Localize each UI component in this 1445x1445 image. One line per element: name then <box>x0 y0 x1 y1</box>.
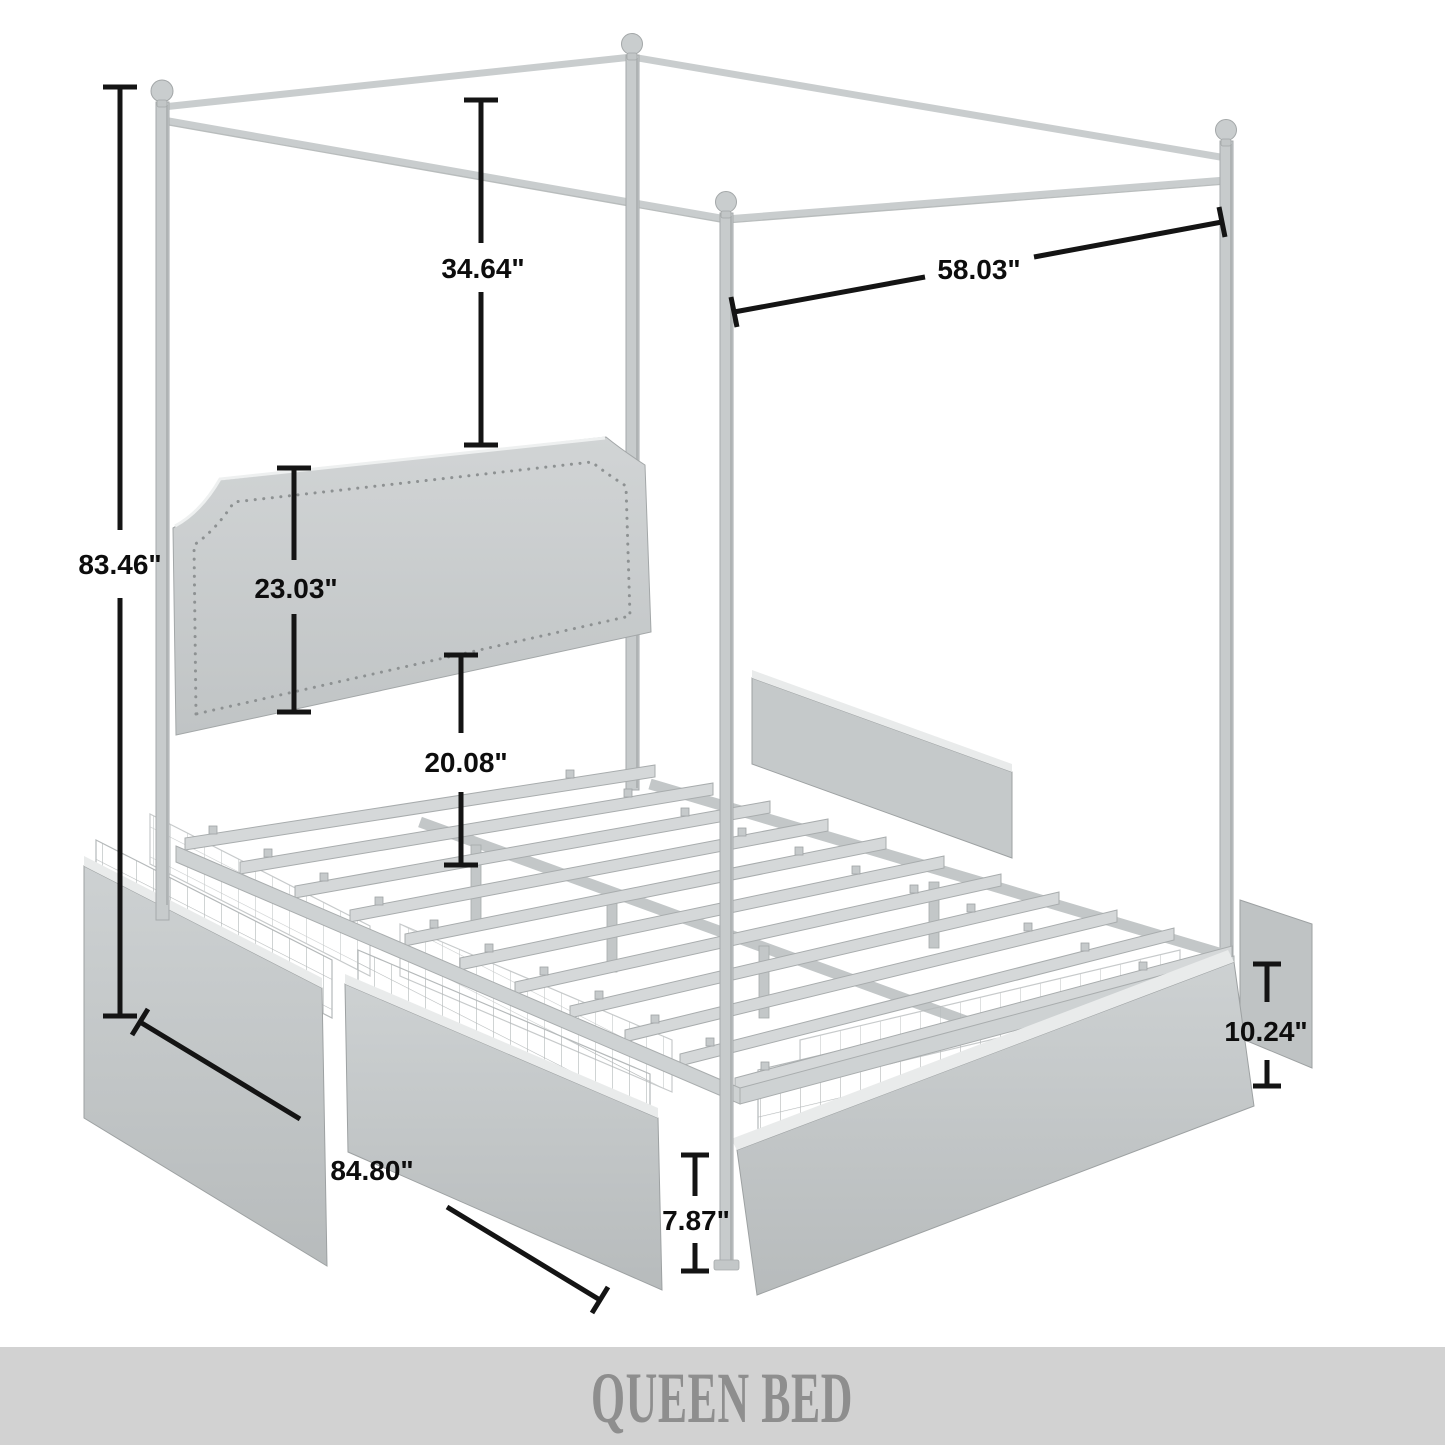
bedpost-head-far <box>622 34 643 791</box>
bed-dimension-diagram: 83.46" 34.64" 58.03" 23.03" 20.08" 84.80… <box>0 0 1445 1445</box>
dim-drawer-height-label: 10.24" <box>1224 1016 1307 1047</box>
banner-title: QUEEN BED <box>591 1358 853 1438</box>
dim-canopy-drop: 34.64" <box>441 100 524 445</box>
dim-platform-height-label: 20.08" <box>424 747 507 778</box>
canopy-frame <box>163 57 1226 223</box>
bedpost-foot-far <box>1216 120 1237 1007</box>
headboard <box>173 437 651 735</box>
dim-canopy-drop-label: 34.64" <box>441 253 524 284</box>
finial-ball <box>1216 120 1237 141</box>
bed-illustration: 83.46" 34.64" 58.03" 23.03" 20.08" 84.80… <box>0 0 1445 1445</box>
finial-ball <box>151 80 173 102</box>
finial-ball <box>622 34 643 55</box>
bedpost-head-near <box>151 80 173 920</box>
dim-headboard-height-label: 23.03" <box>254 573 337 604</box>
post-foot <box>714 1260 739 1270</box>
bedpost-foot-near <box>714 192 739 1271</box>
dim-canopy-width-label: 58.03" <box>937 254 1020 285</box>
finial-ball <box>716 192 737 213</box>
dim-bed-length-label: 84.80" <box>330 1155 413 1186</box>
dim-total-height-label: 83.46" <box>78 549 161 580</box>
title-banner: QUEEN BED <box>0 1347 1445 1445</box>
dim-floor-clearance-label: 7.87" <box>662 1205 730 1236</box>
dim-canopy-width: 58.03" <box>731 207 1225 327</box>
